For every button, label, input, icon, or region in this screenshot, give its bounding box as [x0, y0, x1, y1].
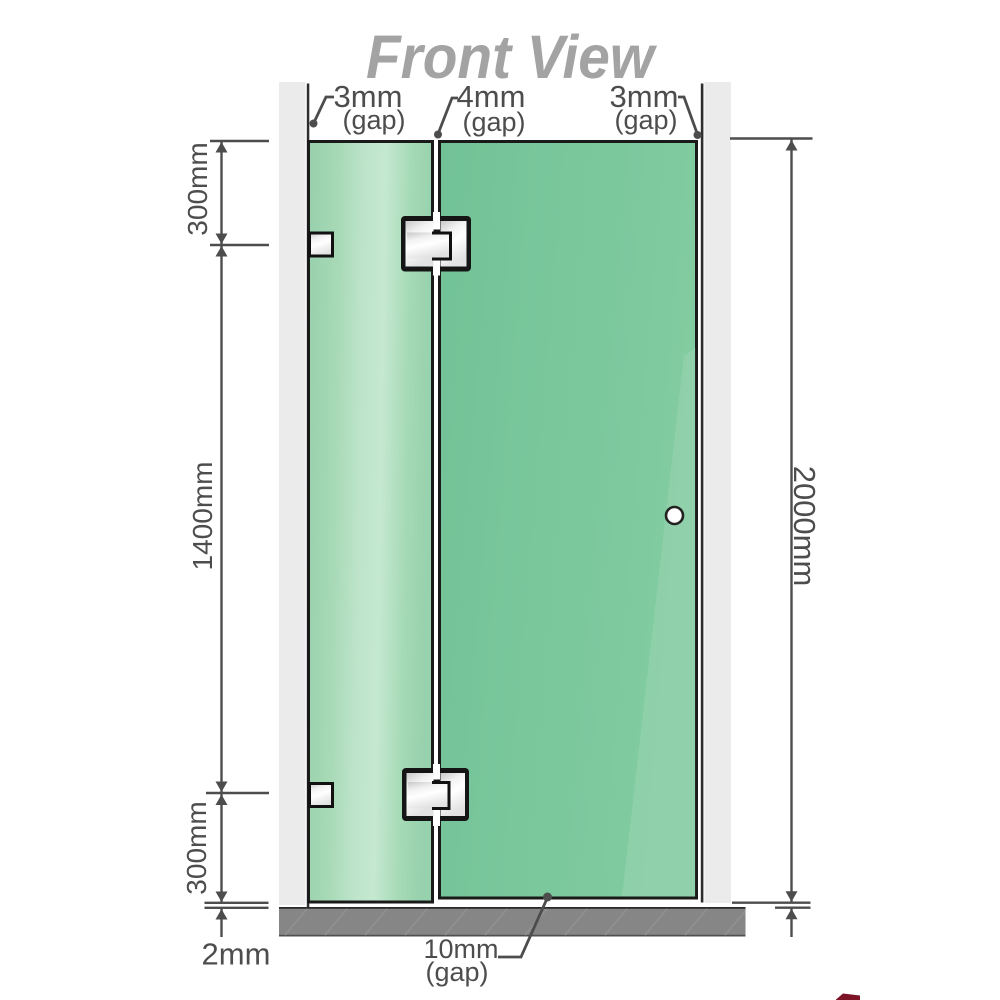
svg-text:2mm: 2mm: [202, 937, 271, 972]
svg-text:300mm: 300mm: [181, 801, 212, 894]
svg-text:(gap): (gap): [614, 105, 677, 135]
svg-text:(gap): (gap): [342, 105, 405, 135]
svg-text:(gap): (gap): [425, 957, 488, 987]
svg-text:1400mm: 1400mm: [187, 462, 218, 571]
svg-text:(gap): (gap): [462, 107, 525, 137]
svg-text:300mm: 300mm: [182, 142, 213, 235]
svg-text:2000mm: 2000mm: [787, 466, 822, 587]
